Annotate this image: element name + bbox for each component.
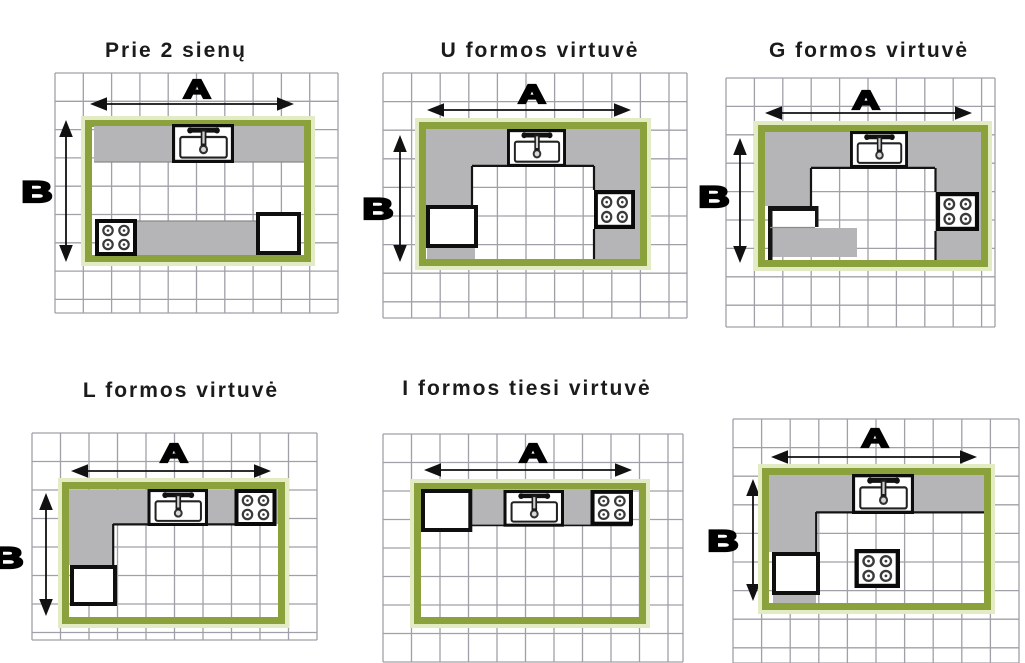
svg-text:B: B [707,524,738,558]
svg-text:L formos virtuvė: L formos virtuvė [83,379,279,402]
svg-text:U formos virtuvė: U formos virtuvė [441,39,640,62]
svg-text:A: A [518,80,545,109]
svg-text:B: B [21,175,52,209]
svg-text:B: B [362,192,393,226]
svg-text:A: A [852,86,879,115]
svg-text:G formos virtuvė: G formos virtuvė [769,39,969,62]
svg-text:B: B [0,541,24,575]
svg-text:A: A [519,439,546,468]
svg-text:A: A [861,424,888,453]
svg-text:I formos tiesi virtuvė: I formos tiesi virtuvė [402,377,651,400]
svg-text:Prie 2 sienų: Prie 2 sienų [105,39,247,62]
svg-text:B: B [698,180,729,214]
svg-text:A: A [183,75,210,104]
svg-text:A: A [160,439,187,468]
